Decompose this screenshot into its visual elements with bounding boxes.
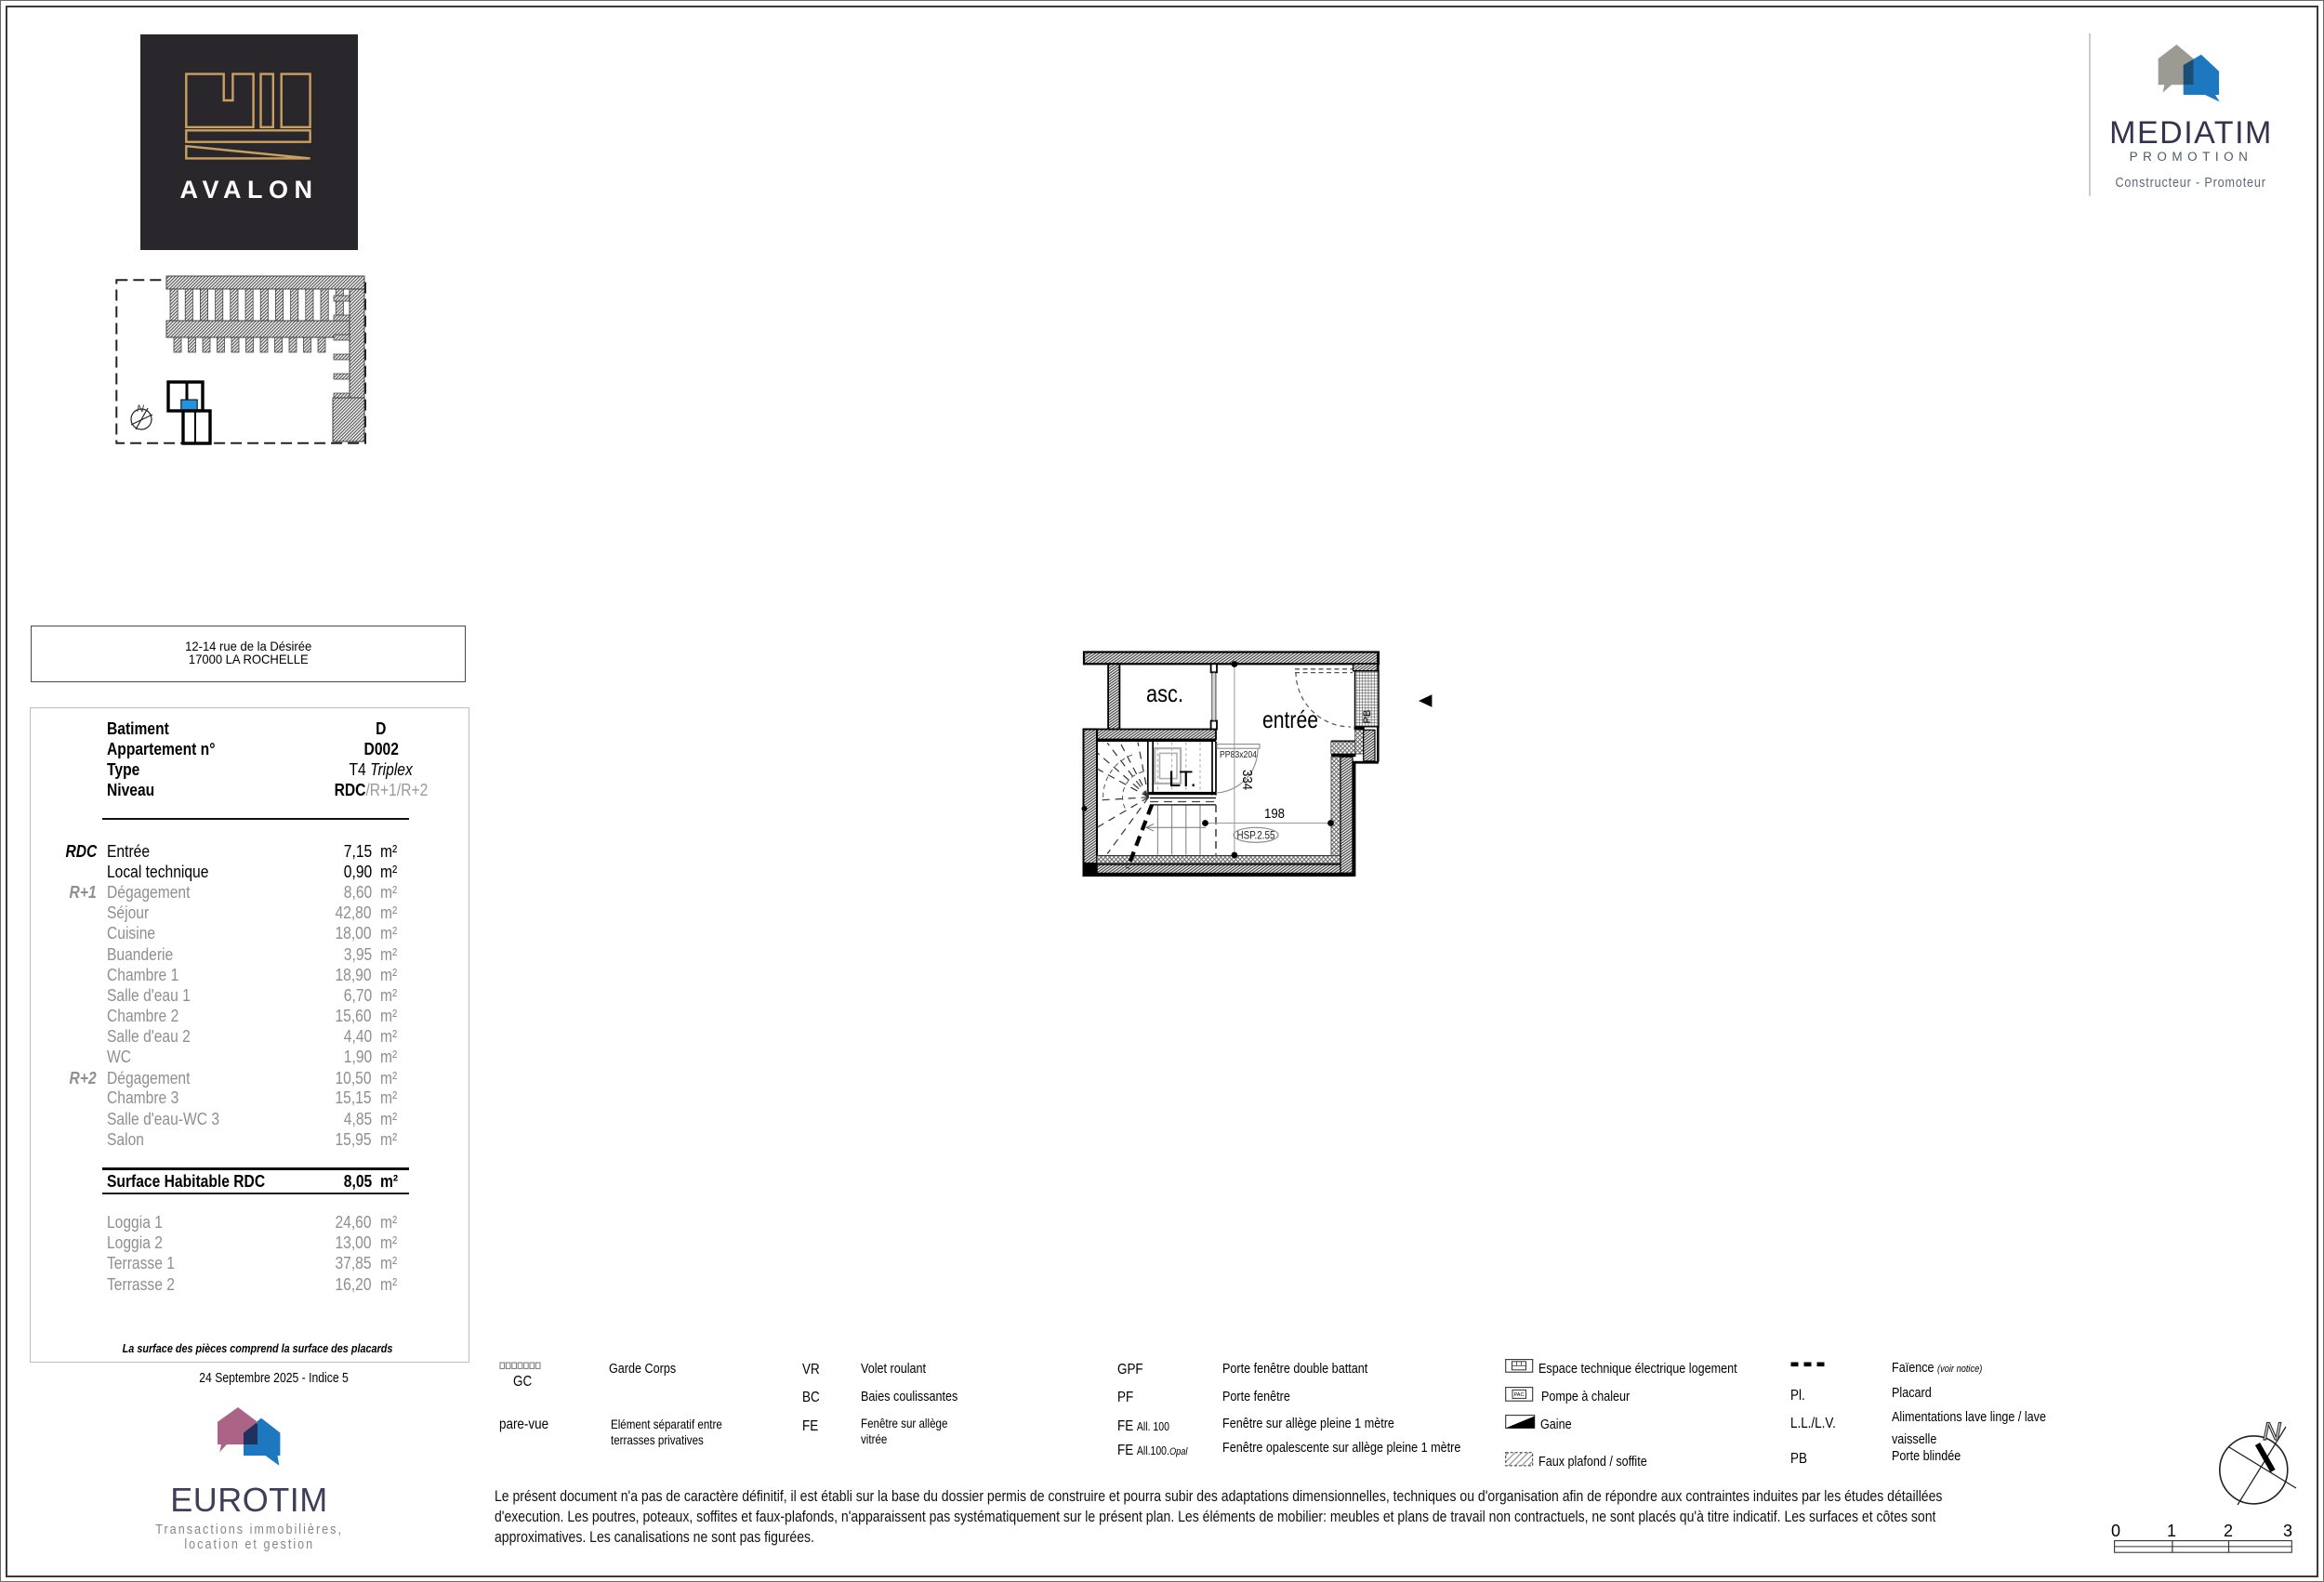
svg-text:PP83x204: PP83x204 [1220, 749, 1257, 760]
svg-text:PAC: PAC [1514, 1392, 1525, 1398]
svg-text:N: N [2263, 1417, 2281, 1445]
svg-text:asc.: asc. [1146, 679, 1183, 707]
svg-text:334: 334 [1239, 770, 1255, 790]
svg-text:LT.: LT. [1169, 767, 1196, 792]
svg-text:entrée: entrée [1262, 705, 1318, 733]
svg-text:AVALON: AVALON [180, 176, 319, 204]
svg-text:PB: PB [1362, 710, 1373, 724]
svg-text:198: 198 [1264, 806, 1285, 822]
svg-text:HSP.2.55: HSP.2.55 [1237, 831, 1275, 842]
svg-text:N: N [137, 403, 144, 415]
